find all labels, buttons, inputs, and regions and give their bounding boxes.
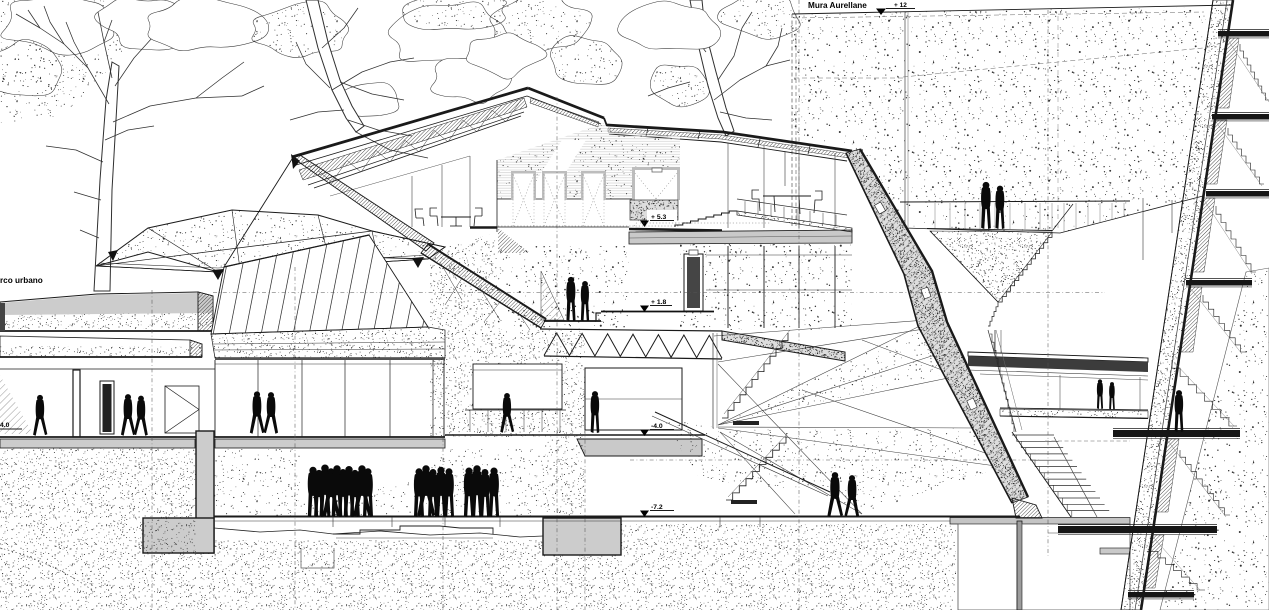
svg-text:+ 1.8: + 1.8: [651, 299, 667, 306]
svg-text:rco urbano: rco urbano: [0, 276, 43, 285]
svg-text:-4.0: -4.0: [651, 423, 663, 430]
svg-text:+ 5.3: + 5.3: [651, 214, 667, 221]
svg-text:4.0: 4.0: [0, 422, 10, 429]
svg-text:Mura Aurellane: Mura Aurellane: [808, 1, 867, 10]
svg-text:+ 12: + 12: [894, 2, 907, 9]
svg-text:-7.2: -7.2: [651, 504, 663, 511]
